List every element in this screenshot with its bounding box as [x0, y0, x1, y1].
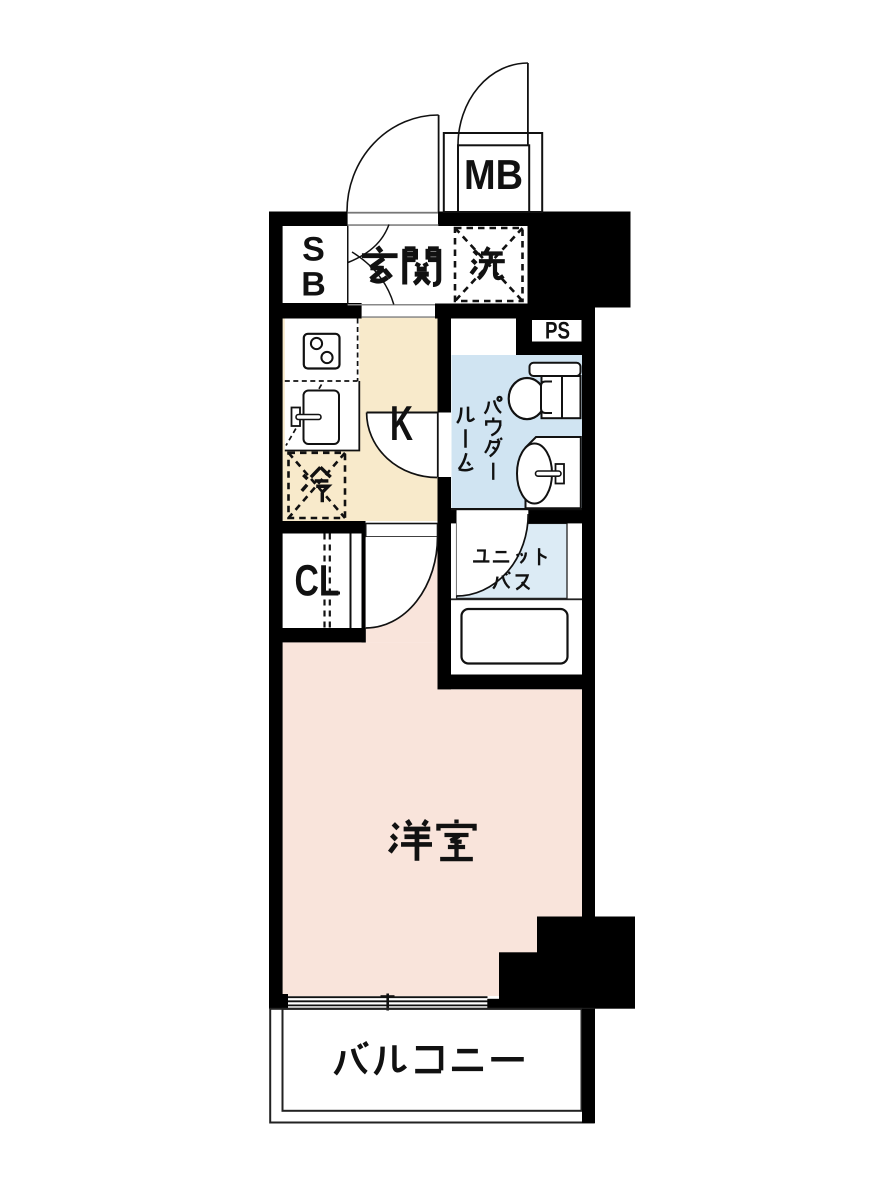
svg-text:B: B [301, 266, 326, 304]
svg-text:CL: CL [295, 557, 340, 606]
svg-text:MB: MB [464, 151, 523, 198]
svg-text:PS: PS [545, 318, 570, 345]
svg-text:K: K [390, 397, 413, 451]
svg-text:S: S [302, 231, 325, 269]
